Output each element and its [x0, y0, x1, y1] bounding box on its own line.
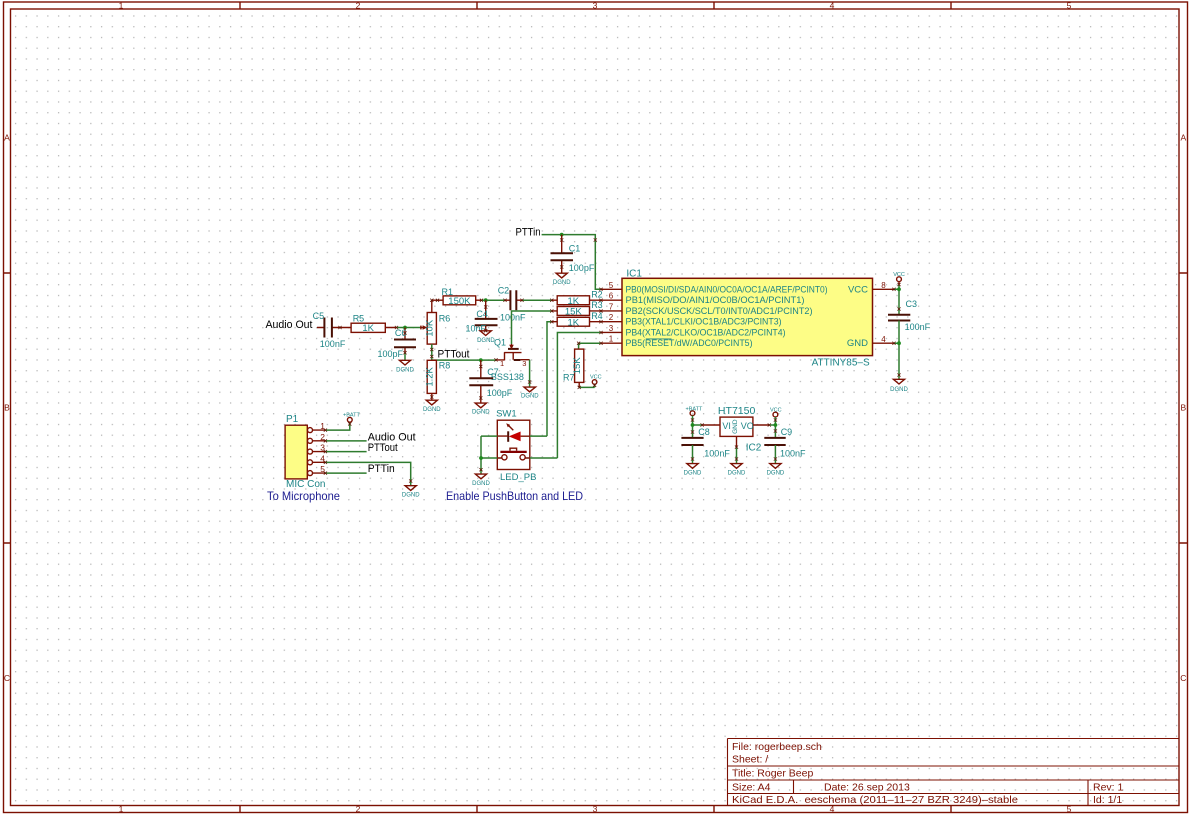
svg-text:150K: 150K	[448, 296, 471, 307]
svg-text:R7: R7	[563, 372, 575, 382]
svg-text:Audio Out: Audio Out	[266, 319, 313, 331]
svg-text:100nF: 100nF	[704, 448, 730, 458]
svg-text:15K: 15K	[565, 307, 583, 318]
svg-text:Rev: 1: Rev: 1	[1093, 782, 1124, 794]
svg-text:DGND: DGND	[521, 394, 539, 400]
svg-text:DGND: DGND	[684, 470, 702, 476]
svg-text:GND: GND	[847, 338, 868, 349]
svg-text:DGND: DGND	[767, 470, 785, 476]
svg-text:PB1(MISO/DO/AIN1/OC0B/OC1A/PCI: PB1(MISO/DO/AIN1/OC0B/OC1A/PCINT1)	[626, 295, 805, 306]
svg-text:Sheet: /: Sheet: /	[732, 754, 768, 766]
svg-text:Enable PushButton and LED: Enable PushButton and LED	[446, 489, 583, 503]
svg-text:P1: P1	[286, 414, 299, 425]
svg-text:PB2(SCK/USCK/SCL/T0/INT0/ADC1/: PB2(SCK/USCK/SCL/T0/INT0/ADC1/PCINT2)	[626, 306, 813, 317]
svg-text:100pF: 100pF	[487, 388, 513, 398]
svg-text:1K: 1K	[567, 296, 579, 307]
svg-text:B: B	[4, 403, 10, 413]
svg-text:C: C	[1180, 673, 1186, 683]
svg-text:100pF: 100pF	[569, 263, 595, 273]
svg-text:C2: C2	[498, 286, 510, 296]
svg-text:C9: C9	[781, 427, 793, 437]
svg-text:C7: C7	[487, 367, 499, 377]
svg-text:5: 5	[1067, 0, 1072, 10]
svg-text:C: C	[4, 673, 10, 683]
svg-text:Size: A4: Size: A4	[732, 782, 771, 794]
svg-text:PTTout: PTTout	[438, 348, 470, 360]
svg-text:3: 3	[593, 0, 598, 10]
svg-text:PTTin: PTTin	[368, 463, 395, 475]
svg-text:R3: R3	[591, 300, 603, 310]
svg-text:IC1: IC1	[626, 269, 642, 280]
svg-text:SW1: SW1	[496, 408, 517, 419]
svg-text:Title: Roger Beep: Title: Roger Beep	[732, 768, 813, 780]
svg-text:5: 5	[609, 281, 614, 290]
svg-text:DGND: DGND	[728, 470, 746, 476]
svg-text:3: 3	[593, 804, 598, 814]
svg-text:2: 2	[609, 313, 614, 322]
svg-text:R2: R2	[591, 289, 603, 299]
svg-text:ATTINY85–S: ATTINY85–S	[812, 357, 870, 369]
svg-text:1: 1	[500, 359, 504, 368]
svg-text:1: 1	[609, 335, 614, 344]
svg-text:A: A	[1180, 133, 1186, 143]
svg-text:PTTout: PTTout	[368, 442, 398, 454]
svg-text:B: B	[1180, 403, 1186, 413]
svg-text:VI: VI	[722, 421, 731, 431]
svg-text:100nF: 100nF	[780, 448, 806, 458]
svg-text:R8: R8	[439, 361, 451, 371]
svg-text:1: 1	[119, 804, 124, 814]
svg-text:8: 8	[881, 281, 886, 290]
svg-text:10K: 10K	[425, 319, 436, 337]
svg-text:R4: R4	[591, 311, 603, 321]
svg-text:A: A	[4, 133, 10, 143]
svg-text:Id: 1/1: Id: 1/1	[1093, 794, 1122, 806]
svg-text:100nF: 100nF	[500, 312, 526, 322]
svg-text:LED_PB: LED_PB	[500, 472, 536, 483]
svg-text:PB4(XTAL2/CLKO/OC1B/ADC2/PCINT: PB4(XTAL2/CLKO/OC1B/ADC2/PCINT4)	[626, 327, 786, 338]
svg-text:KiCad E.D.A. eeschema (2011–1: KiCad E.D.A. eeschema (2011–11–27 BZR 32…	[732, 794, 1018, 806]
svg-text:7: 7	[609, 302, 614, 311]
svg-text:100nF: 100nF	[905, 322, 931, 332]
svg-text:+BATT: +BATT	[343, 412, 361, 418]
svg-text:GND: GND	[732, 419, 739, 434]
svg-text:100nF: 100nF	[320, 339, 346, 349]
svg-text:PTTin: PTTin	[516, 226, 541, 238]
svg-text:2: 2	[356, 804, 361, 814]
svg-text:VCC: VCC	[770, 408, 782, 414]
svg-text:1: 1	[119, 0, 124, 10]
svg-text:+BATT: +BATT	[686, 407, 704, 413]
svg-text:C5: C5	[313, 311, 325, 321]
svg-text:DGND: DGND	[423, 407, 441, 413]
svg-text:DGND: DGND	[553, 280, 571, 286]
svg-text:HT7150: HT7150	[718, 405, 756, 417]
svg-text:3: 3	[609, 324, 614, 333]
svg-text:DGND: DGND	[396, 367, 414, 373]
svg-text:R5: R5	[353, 314, 365, 324]
svg-text:Q1: Q1	[494, 338, 506, 348]
svg-text:2: 2	[356, 0, 361, 10]
svg-text:C4: C4	[476, 309, 488, 319]
svg-text:C8: C8	[698, 427, 710, 437]
svg-text:To Microphone: To Microphone	[267, 489, 340, 503]
svg-text:4: 4	[881, 335, 886, 344]
svg-text:C1: C1	[569, 243, 581, 253]
svg-text:VCC: VCC	[848, 284, 868, 295]
svg-text:C3: C3	[906, 299, 918, 309]
svg-text:DGND: DGND	[472, 410, 490, 416]
svg-text:6: 6	[609, 292, 614, 301]
svg-text:DGND: DGND	[477, 338, 495, 344]
svg-text:DGND: DGND	[890, 387, 908, 393]
svg-text:VCC: VCC	[590, 375, 602, 381]
svg-text:DGND: DGND	[402, 492, 420, 498]
svg-text:5: 5	[1067, 804, 1072, 814]
svg-text:1.2K: 1.2K	[425, 366, 436, 386]
svg-text:10nF: 10nF	[466, 324, 487, 334]
svg-text:3: 3	[522, 359, 526, 368]
svg-text:R1: R1	[442, 287, 454, 297]
svg-text:File: rogerbeep.sch: File: rogerbeep.sch	[732, 741, 822, 753]
svg-text:PB5(RESET/dW/ADC0/PCINT5): PB5(RESET/dW/ADC0/PCINT5)	[626, 338, 753, 349]
svg-text:Date: 26 sep 2013: Date: 26 sep 2013	[824, 782, 910, 794]
svg-text:100pF: 100pF	[378, 349, 404, 359]
svg-text:VO: VO	[741, 421, 754, 431]
svg-text:1K: 1K	[567, 317, 579, 328]
svg-text:4: 4	[830, 0, 835, 10]
svg-text:R6: R6	[439, 313, 451, 323]
svg-text:PB3(XTAL1/CLKI/OC1B/ADC3/PCINT: PB3(XTAL1/CLKI/OC1B/ADC3/PCINT3)	[626, 317, 782, 328]
svg-text:IC2: IC2	[746, 442, 762, 453]
svg-text:VCC: VCC	[893, 272, 905, 278]
svg-text:1K: 1K	[362, 323, 374, 334]
svg-text:DGND: DGND	[472, 481, 490, 487]
svg-text:PB0(MOSI/DI/SDA/AIN0/OC0A/OC1A: PB0(MOSI/DI/SDA/AIN0/OC0A/OC1A/AREF/PCIN…	[626, 284, 828, 295]
